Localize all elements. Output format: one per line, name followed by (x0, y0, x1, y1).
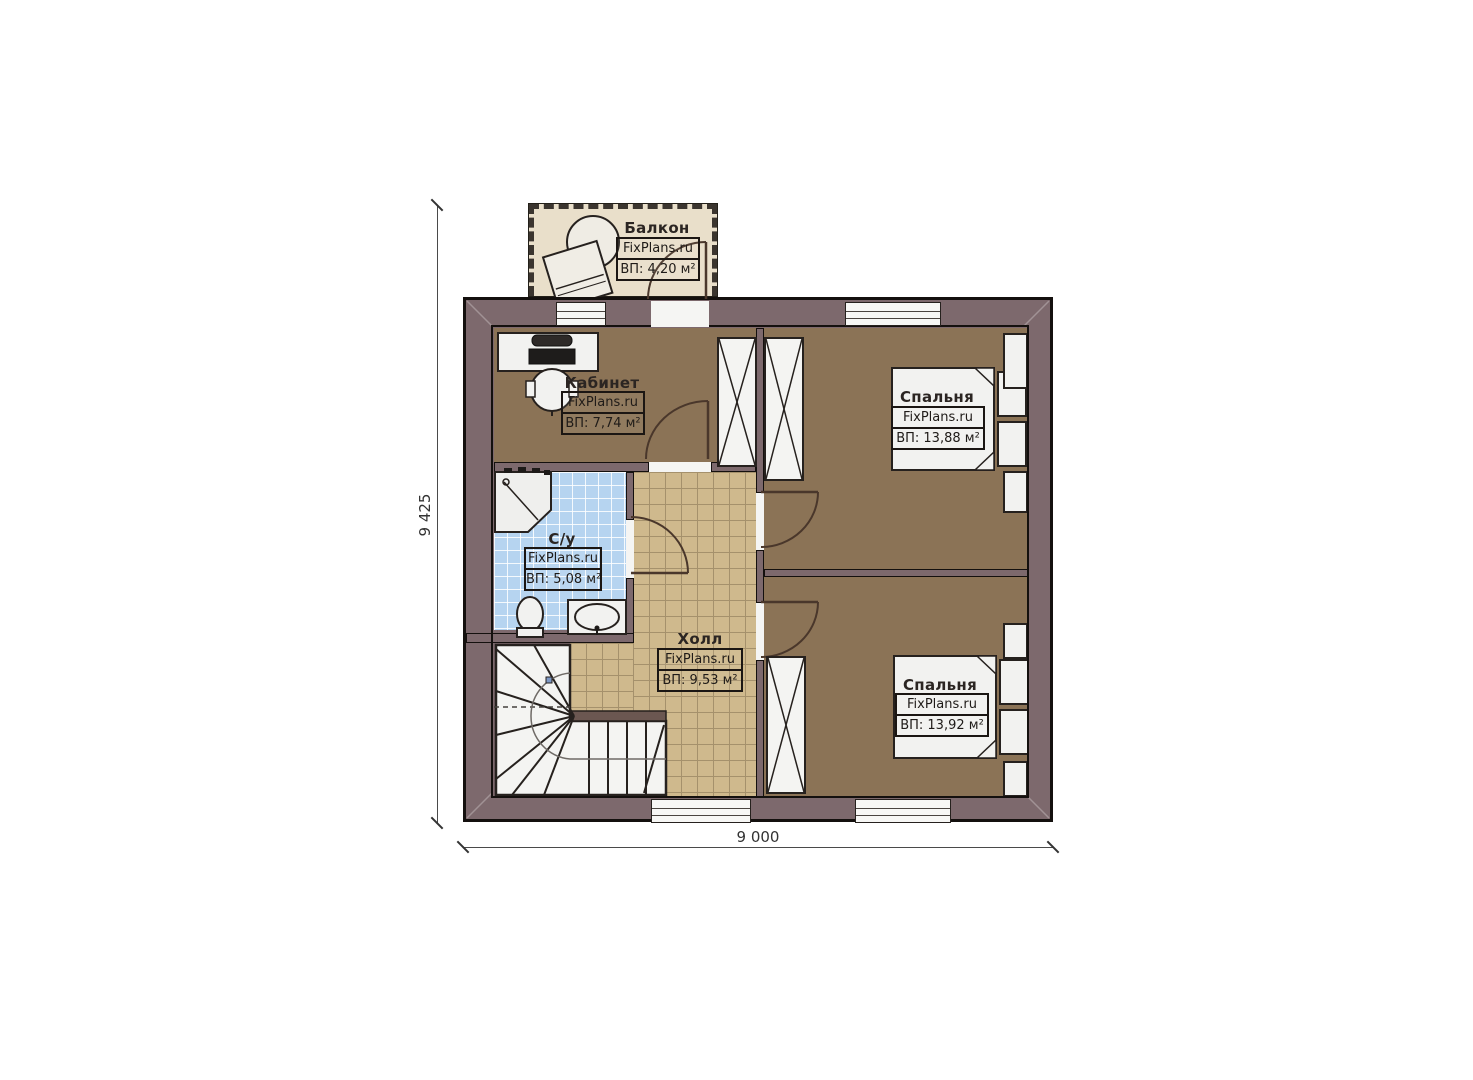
room-name-bathroom: С/у (512, 530, 612, 548)
brand-label: FixPlans.ru (897, 695, 987, 716)
area-box-bathroom: FixPlans.ru ВП: 5,08 м² (524, 547, 602, 591)
door-arc-icon (758, 488, 822, 552)
dimension-label-width: 9 000 (708, 828, 808, 846)
cabinet-icon (1003, 471, 1028, 513)
area-box-hall: FixPlans.ru ВП: 9,53 м² (657, 648, 743, 692)
door-arc-icon (640, 395, 715, 470)
area-label: ВП: 13,88 м² (893, 429, 983, 448)
area-box-bedroom-bottom: FixPlans.ru ВП: 13,92 м² (895, 693, 989, 737)
brand-label: FixPlans.ru (659, 650, 741, 671)
area-label: ВП: 4,20 м² (618, 260, 698, 279)
room-name-hall: Холл (640, 630, 760, 648)
area-label: ВП: 13,92 м² (897, 716, 987, 735)
area-label: ВП: 5,08 м² (526, 570, 600, 589)
room-name-bedroom-bottom: Спальня (880, 676, 1000, 694)
room-name-bedroom-top: Спальня (877, 388, 997, 406)
brand-label: FixPlans.ru (618, 239, 698, 260)
balcony-door-opening (651, 301, 709, 327)
area-box-bedroom-top: FixPlans.ru ВП: 13,88 м² (891, 406, 985, 450)
wardrobe-icon (766, 656, 806, 794)
door-arc-icon (628, 514, 694, 580)
window (651, 799, 751, 823)
area-box-office: FixPlans.ru ВП: 7,74 м² (561, 391, 645, 435)
area-label: ВП: 9,53 м² (659, 671, 741, 690)
window (845, 302, 941, 326)
room-name-balcony: Балкон (597, 219, 717, 237)
wardrobe-icon (717, 337, 757, 467)
dimension-line-horizontal (463, 847, 1053, 848)
brand-label: FixPlans.ru (563, 393, 643, 414)
cabinet-icon (1003, 761, 1028, 797)
dimension-label-height: 9 425 (416, 480, 434, 550)
room-name-office: Кабинет (542, 374, 662, 392)
window (855, 799, 951, 823)
brand-label: FixPlans.ru (893, 408, 983, 429)
wardrobe-icon (764, 337, 804, 481)
brand-label: FixPlans.ru (526, 549, 600, 570)
area-box-balcony: FixPlans.ru ВП: 4,20 м² (616, 237, 700, 281)
cabinet-icon (1003, 623, 1028, 659)
dimension-line-vertical (437, 205, 438, 823)
floor-plan-canvas: Балкон FixPlans.ru ВП: 4,20 м² Кабинет F… (0, 0, 1473, 1080)
window (556, 302, 606, 326)
door-arc-icon (758, 598, 822, 662)
cabinet-icon (1003, 333, 1028, 389)
area-label: ВП: 7,74 м² (563, 414, 643, 433)
